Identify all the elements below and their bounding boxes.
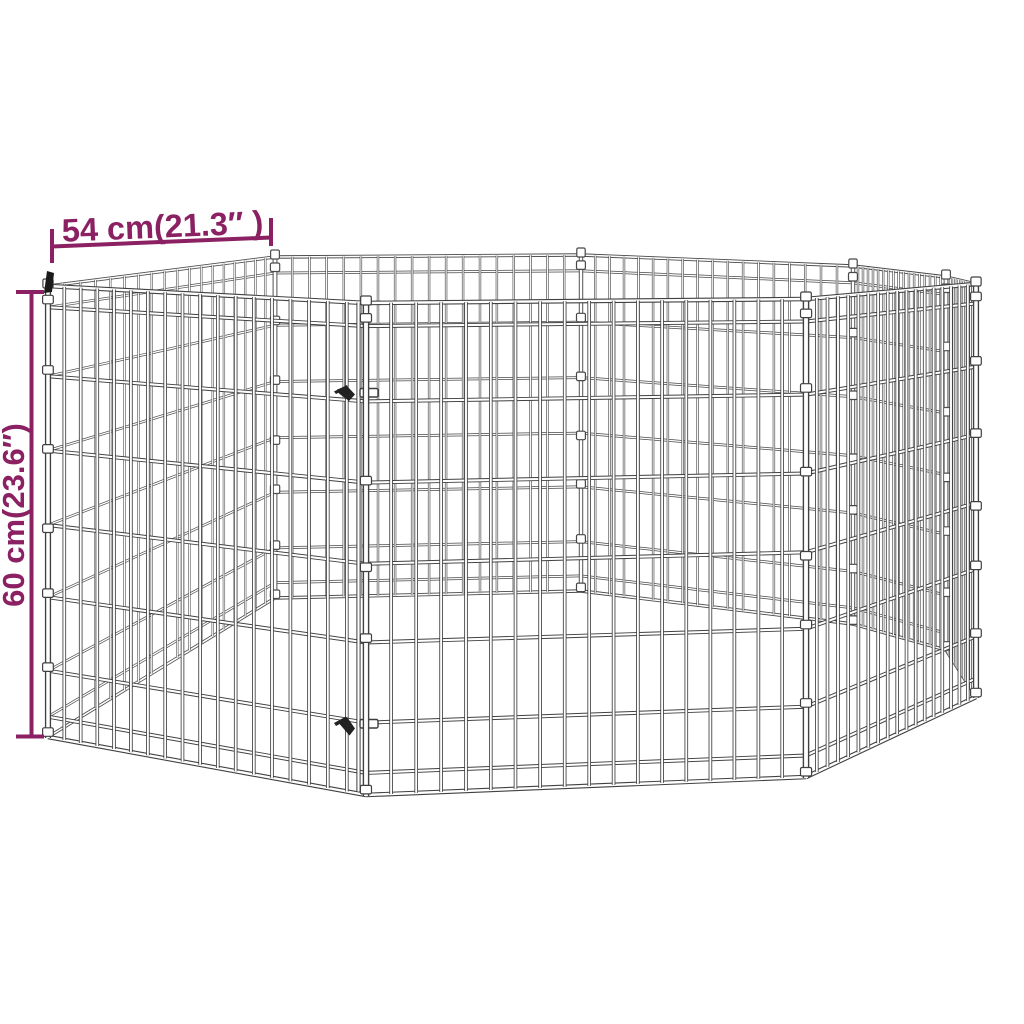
svg-text:60 cm(23.6″): 60 cm(23.6″): [0, 423, 31, 607]
